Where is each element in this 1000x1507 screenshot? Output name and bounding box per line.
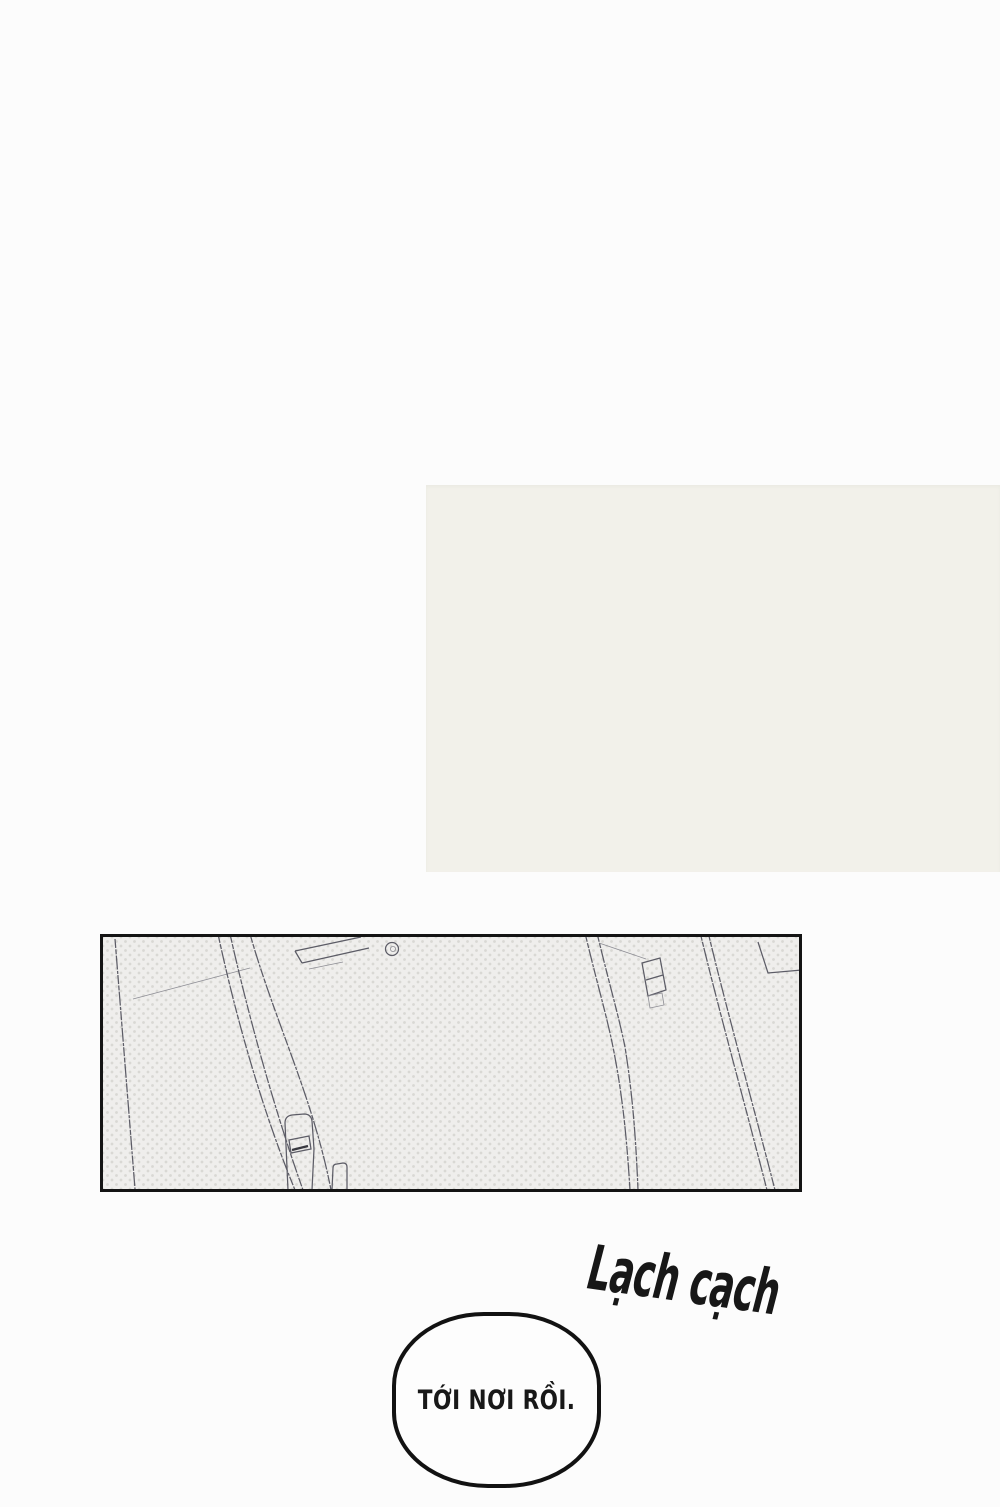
- sketch-peephole-inner: [390, 946, 395, 951]
- sfx-text: Lạch cạch: [584, 1231, 784, 1329]
- sketch-door-edge-center-2: [597, 937, 638, 1189]
- sketch-wall-edge-left: [115, 939, 135, 1189]
- speech-bubble-text: TỚI NƠI RỒI.: [418, 1385, 576, 1416]
- panel-artwork: [103, 937, 799, 1189]
- speech-bubble: TỚI NƠI RỒI.: [392, 1312, 601, 1488]
- sketch-top-rail: [295, 937, 369, 963]
- sketch-door-frame-line-1: [218, 937, 295, 1189]
- sketch-cabinet-corner: [758, 942, 799, 973]
- sketch-peephole: [386, 943, 399, 956]
- cream-tone-block: [426, 485, 1000, 872]
- sketch-handle-bar: [292, 1146, 308, 1150]
- sketch-light-switch: [642, 958, 666, 996]
- sketch-light-switch-lower: [648, 993, 664, 1008]
- sketch-switch-link-line: [599, 943, 646, 959]
- sketch-small-box: [332, 1163, 347, 1189]
- sketch-top-rail-shadow: [309, 962, 343, 969]
- sketch-door-edge-right-2: [708, 937, 775, 1189]
- sketch-door-frame-line-2: [230, 937, 303, 1189]
- sketch-panel: [100, 934, 802, 1192]
- comic-page: Lạch cạch TỚI NƠI RỒI.: [0, 0, 1000, 1507]
- sketch-door-edge-right-1: [700, 937, 767, 1189]
